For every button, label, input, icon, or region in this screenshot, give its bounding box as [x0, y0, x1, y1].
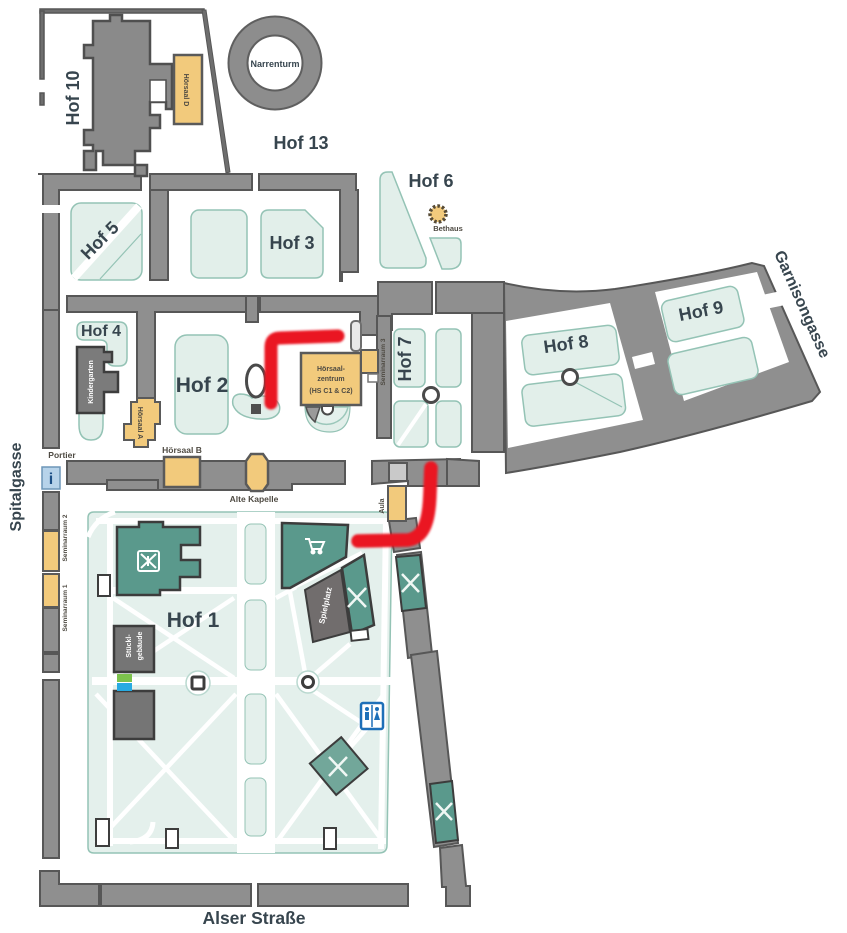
svg-text:gebäude: gebäude — [137, 632, 144, 661]
svg-text:Hörsaal-: Hörsaal- — [317, 366, 346, 373]
svg-text:zentrum: zentrum — [317, 376, 344, 383]
svg-text:Stückl-: Stückl- — [126, 634, 133, 658]
svg-text:Portier: Portier — [48, 450, 76, 460]
svg-text:Hof 1: Hof 1 — [167, 609, 220, 632]
svg-text:i: i — [49, 471, 53, 488]
svg-text:Seminarraum 3: Seminarraum 3 — [380, 338, 387, 385]
svg-text:Hof 2: Hof 2 — [176, 374, 229, 397]
svg-text:Seminarraum 2: Seminarraum 2 — [62, 514, 69, 561]
svg-text:Hof 7: Hof 7 — [395, 337, 415, 382]
svg-text:Alser Straße: Alser Straße — [202, 908, 305, 928]
svg-text:Hof 3: Hof 3 — [270, 233, 315, 253]
svg-text:Kindergarten: Kindergarten — [88, 360, 95, 404]
svg-text:Narrenturm: Narrenturm — [250, 59, 299, 69]
svg-text:Hörsaal D: Hörsaal D — [182, 74, 189, 107]
svg-text:(HS C1 & C2): (HS C1 & C2) — [309, 388, 352, 395]
svg-text:Hörsaal B: Hörsaal B — [162, 445, 202, 455]
svg-text:Aula: Aula — [379, 498, 386, 513]
svg-text:Hof 6: Hof 6 — [409, 171, 454, 191]
svg-text:Alte Kapelle: Alte Kapelle — [230, 494, 279, 504]
svg-text:Hof 10: Hof 10 — [63, 70, 83, 125]
svg-text:Bethaus: Bethaus — [433, 224, 463, 233]
svg-text:Hörsaal A: Hörsaal A — [136, 407, 143, 439]
svg-text:Hof 13: Hof 13 — [273, 133, 328, 153]
svg-text:Spitalgasse: Spitalgasse — [8, 442, 25, 531]
svg-text:Hof 4: Hof 4 — [81, 323, 121, 340]
svg-text:Seminarraum 1: Seminarraum 1 — [62, 584, 69, 631]
